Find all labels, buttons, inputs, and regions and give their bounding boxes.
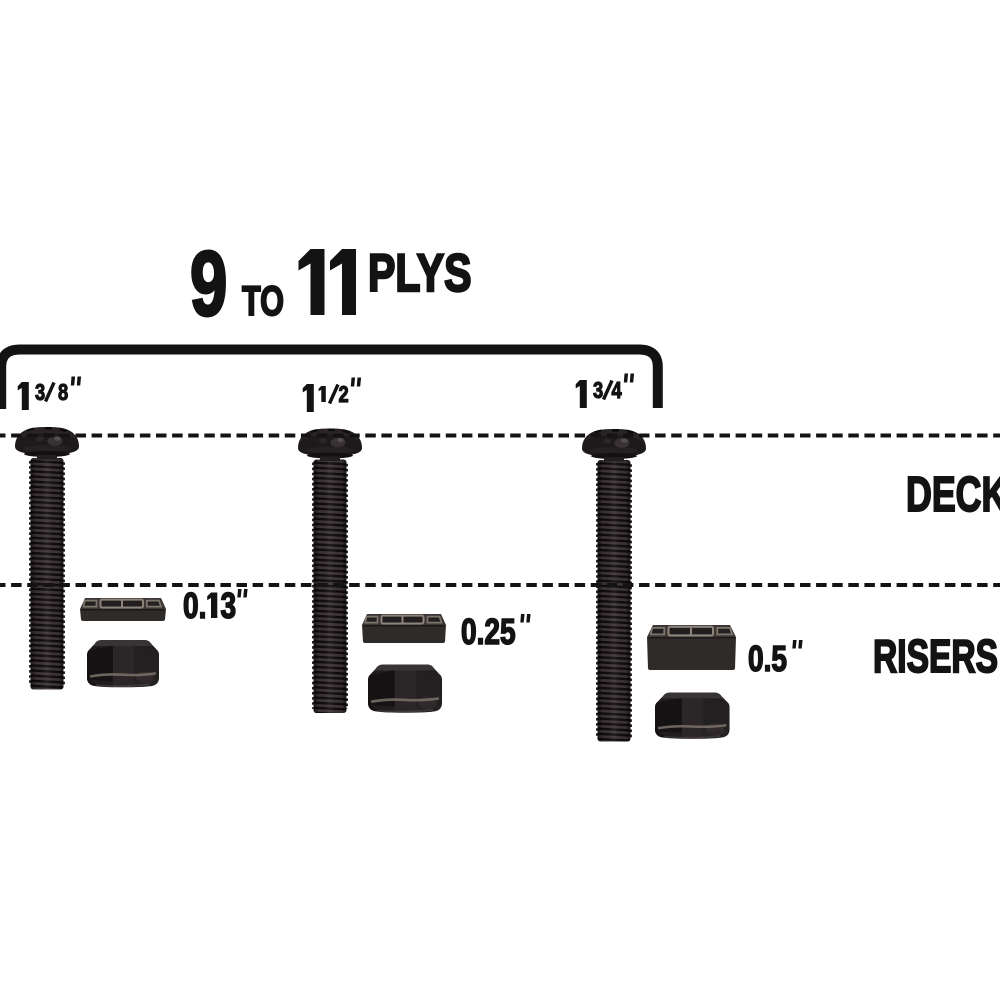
svg-text:4: 4 bbox=[612, 378, 622, 404]
svg-text:PLYS: PLYS bbox=[368, 244, 471, 303]
svg-text:0.25: 0.25 bbox=[461, 612, 516, 652]
svg-text:3: 3 bbox=[221, 586, 237, 626]
svg-text:TO: TO bbox=[242, 277, 284, 324]
svg-text:9: 9 bbox=[190, 233, 227, 336]
svg-text:8: 8 bbox=[58, 380, 68, 406]
svg-text:0.: 0. bbox=[183, 586, 206, 626]
svg-text:3: 3 bbox=[593, 378, 603, 404]
svg-text:2: 2 bbox=[339, 382, 349, 408]
svg-text:0.5: 0.5 bbox=[748, 639, 787, 679]
svg-text:DECK: DECK bbox=[906, 468, 1000, 523]
svg-text:3: 3 bbox=[35, 380, 45, 406]
svg-text:RISERS: RISERS bbox=[873, 631, 998, 682]
